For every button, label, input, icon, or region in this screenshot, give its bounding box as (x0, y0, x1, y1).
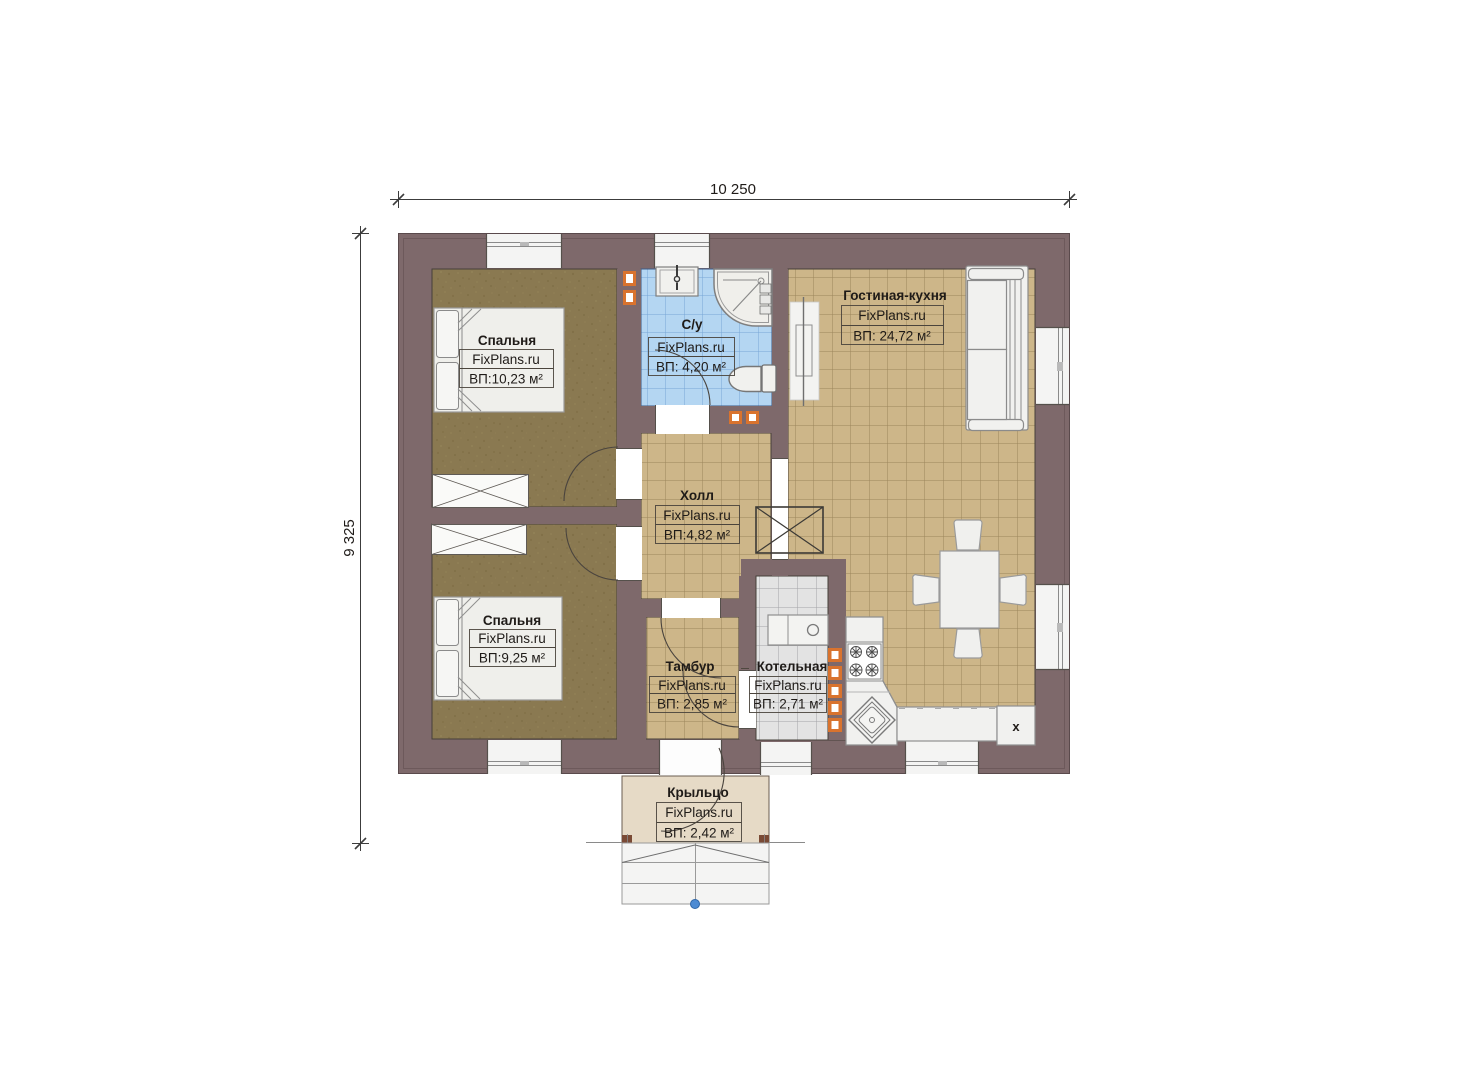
svg-text:х: х (1012, 719, 1020, 734)
svg-text:Тамбур: Тамбур (666, 659, 715, 674)
svg-text:ВП: 2,85 м²: ВП: 2,85 м² (657, 697, 728, 712)
svg-text:ВП: 2,71 м²: ВП: 2,71 м² (753, 697, 824, 712)
svg-text:FixPlans.ru: FixPlans.ru (478, 631, 546, 646)
svg-text:ВП:9,25 м²: ВП:9,25 м² (479, 651, 546, 666)
svg-text:С/у: С/у (681, 317, 703, 332)
svg-text:FixPlans.ru: FixPlans.ru (472, 352, 540, 367)
svg-text:FixPlans.ru: FixPlans.ru (663, 508, 731, 523)
svg-text:ВП:4,82 м²: ВП:4,82 м² (664, 528, 731, 543)
svg-text:ВП:10,23 м²: ВП:10,23 м² (469, 372, 543, 387)
svg-text:FixPlans.ru: FixPlans.ru (754, 678, 822, 693)
svg-text:FixPlans.ru: FixPlans.ru (858, 308, 926, 323)
svg-text:Котельная: Котельная (757, 659, 828, 674)
svg-text:Спальня: Спальня (478, 333, 536, 348)
svg-text:ВП: 24,72 м²: ВП: 24,72 м² (853, 329, 931, 344)
svg-text:ВП: 2,42 м²: ВП: 2,42 м² (664, 826, 735, 841)
svg-text:FixPlans.ru: FixPlans.ru (665, 805, 733, 820)
svg-text:Крыльцо: Крыльцо (667, 785, 728, 800)
svg-text:ВП: 4,20 м²: ВП: 4,20 м² (656, 360, 727, 375)
svg-text:Холл: Холл (680, 488, 714, 503)
svg-text:FixPlans.ru: FixPlans.ru (658, 678, 726, 693)
svg-text:Спальня: Спальня (483, 613, 541, 628)
svg-text:Гостиная-кухня: Гостиная-кухня (843, 288, 946, 303)
svg-text:9 325: 9 325 (341, 519, 358, 557)
svg-text:FixPlans.ru: FixPlans.ru (657, 340, 725, 355)
svg-text:10 250: 10 250 (710, 181, 756, 198)
